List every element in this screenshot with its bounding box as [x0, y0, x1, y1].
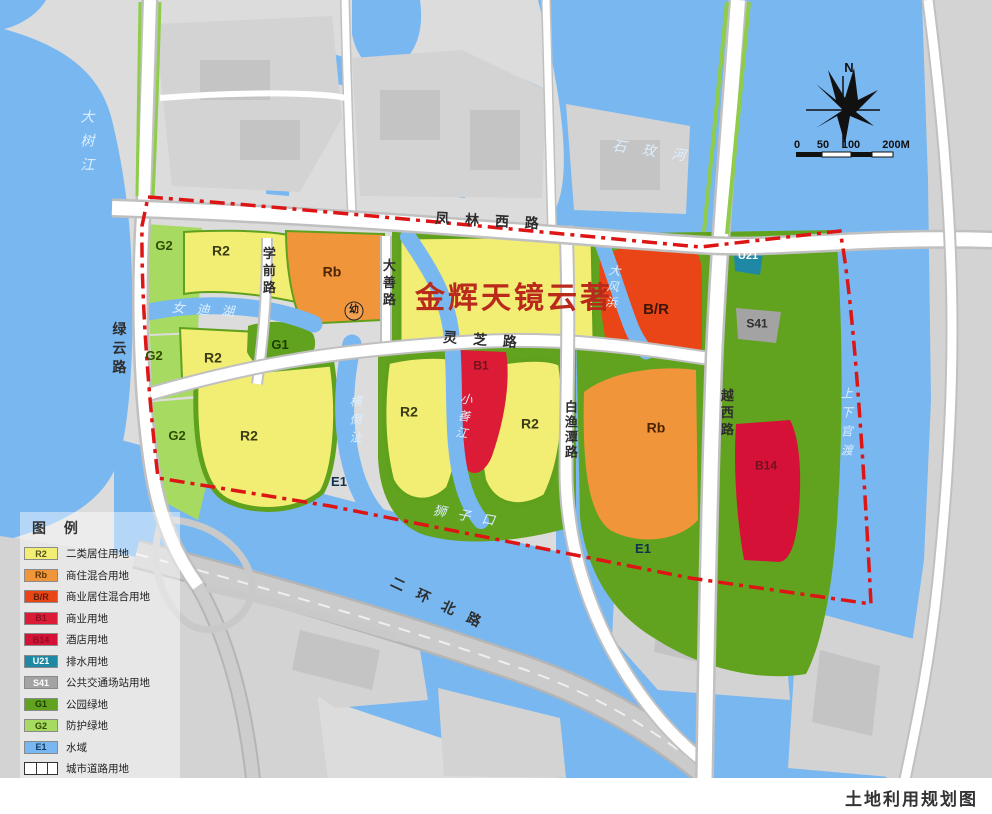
- map-caption: 土地利用规划图: [845, 785, 978, 810]
- legend-label: 公园绿地: [66, 697, 108, 712]
- road-lvyun-north: [144, 0, 150, 200]
- legend-label: 排水用地: [66, 654, 108, 669]
- parcel-b14: [735, 420, 800, 562]
- legend-item: G2防护绿地: [24, 718, 176, 733]
- legend-swatch: B1: [24, 612, 58, 625]
- legend-swatch: Rb: [24, 569, 58, 582]
- legend-item: S41公共交通场站用地: [24, 675, 176, 690]
- building: [470, 110, 520, 170]
- building: [380, 90, 440, 140]
- scale-bar: [796, 152, 893, 157]
- legend-swatch: S41: [24, 676, 58, 689]
- legend-items: R2二类居住用地Rb商住混合用地B/R商业居住混合用地B1商业用地B14酒店用地…: [24, 546, 176, 798]
- legend-item: U21排水用地: [24, 654, 176, 669]
- legend-label: 商业居住混合用地: [66, 589, 150, 604]
- parcel-r2-upper-left: [184, 231, 298, 302]
- legend-swatch: G1: [24, 698, 58, 711]
- legend-swatch: R2: [24, 547, 58, 560]
- legend-label: 商业用地: [66, 611, 108, 626]
- legend-label: 二类居住用地: [66, 546, 129, 561]
- legend-item: G1公园绿地: [24, 697, 176, 712]
- building: [600, 140, 660, 190]
- legend-swatch: U21: [24, 655, 58, 668]
- legend-item: 城市道路用地: [24, 761, 176, 776]
- scale-segment: [796, 152, 822, 157]
- legend-label: 公共交通场站用地: [66, 675, 150, 690]
- legend-title: 图 例: [32, 518, 176, 538]
- legend-label: 城市道路用地: [66, 761, 129, 776]
- parcel-s41: [736, 308, 781, 343]
- legend-swatch: B14: [24, 633, 58, 646]
- legend-panel: 图 例 R2二类居住用地Rb商住混合用地B/R商业居住混合用地B1商业用地B14…: [20, 512, 180, 810]
- urban-block: [155, 16, 342, 192]
- legend-label: 防护绿地: [66, 718, 108, 733]
- legend-item: B1商业用地: [24, 611, 176, 626]
- legend-swatch-road: [24, 762, 58, 775]
- scale-segment: [872, 152, 893, 157]
- scale-segment: [822, 152, 851, 157]
- legend-label: 酒店用地: [66, 632, 108, 647]
- legend-swatch: B/R: [24, 590, 58, 603]
- legend-item: B14酒店用地: [24, 632, 176, 647]
- building: [240, 120, 300, 160]
- legend-item: B/R商业居住混合用地: [24, 589, 176, 604]
- legend-swatch: E1: [24, 741, 58, 754]
- scale-segment: [851, 152, 872, 157]
- land-use-planning-map: 凤 林 西 路灵 芝 路二 环 北 路绿云路学前路大善路白渔潭路越西路大树江石 …: [0, 0, 992, 814]
- legend-swatch: G2: [24, 719, 58, 732]
- legend-label: 水域: [66, 740, 87, 755]
- parcel-r2-lower-left: [196, 364, 336, 509]
- bottom-margin: [0, 778, 992, 814]
- legend-label: 商住混合用地: [66, 568, 129, 583]
- legend-item: E1水域: [24, 740, 176, 755]
- legend-item: R2二类居住用地: [24, 546, 176, 561]
- parcel-rb-east: [584, 368, 698, 539]
- project-title: 金辉天镜云著: [415, 273, 613, 317]
- legend-item: Rb商住混合用地: [24, 568, 176, 583]
